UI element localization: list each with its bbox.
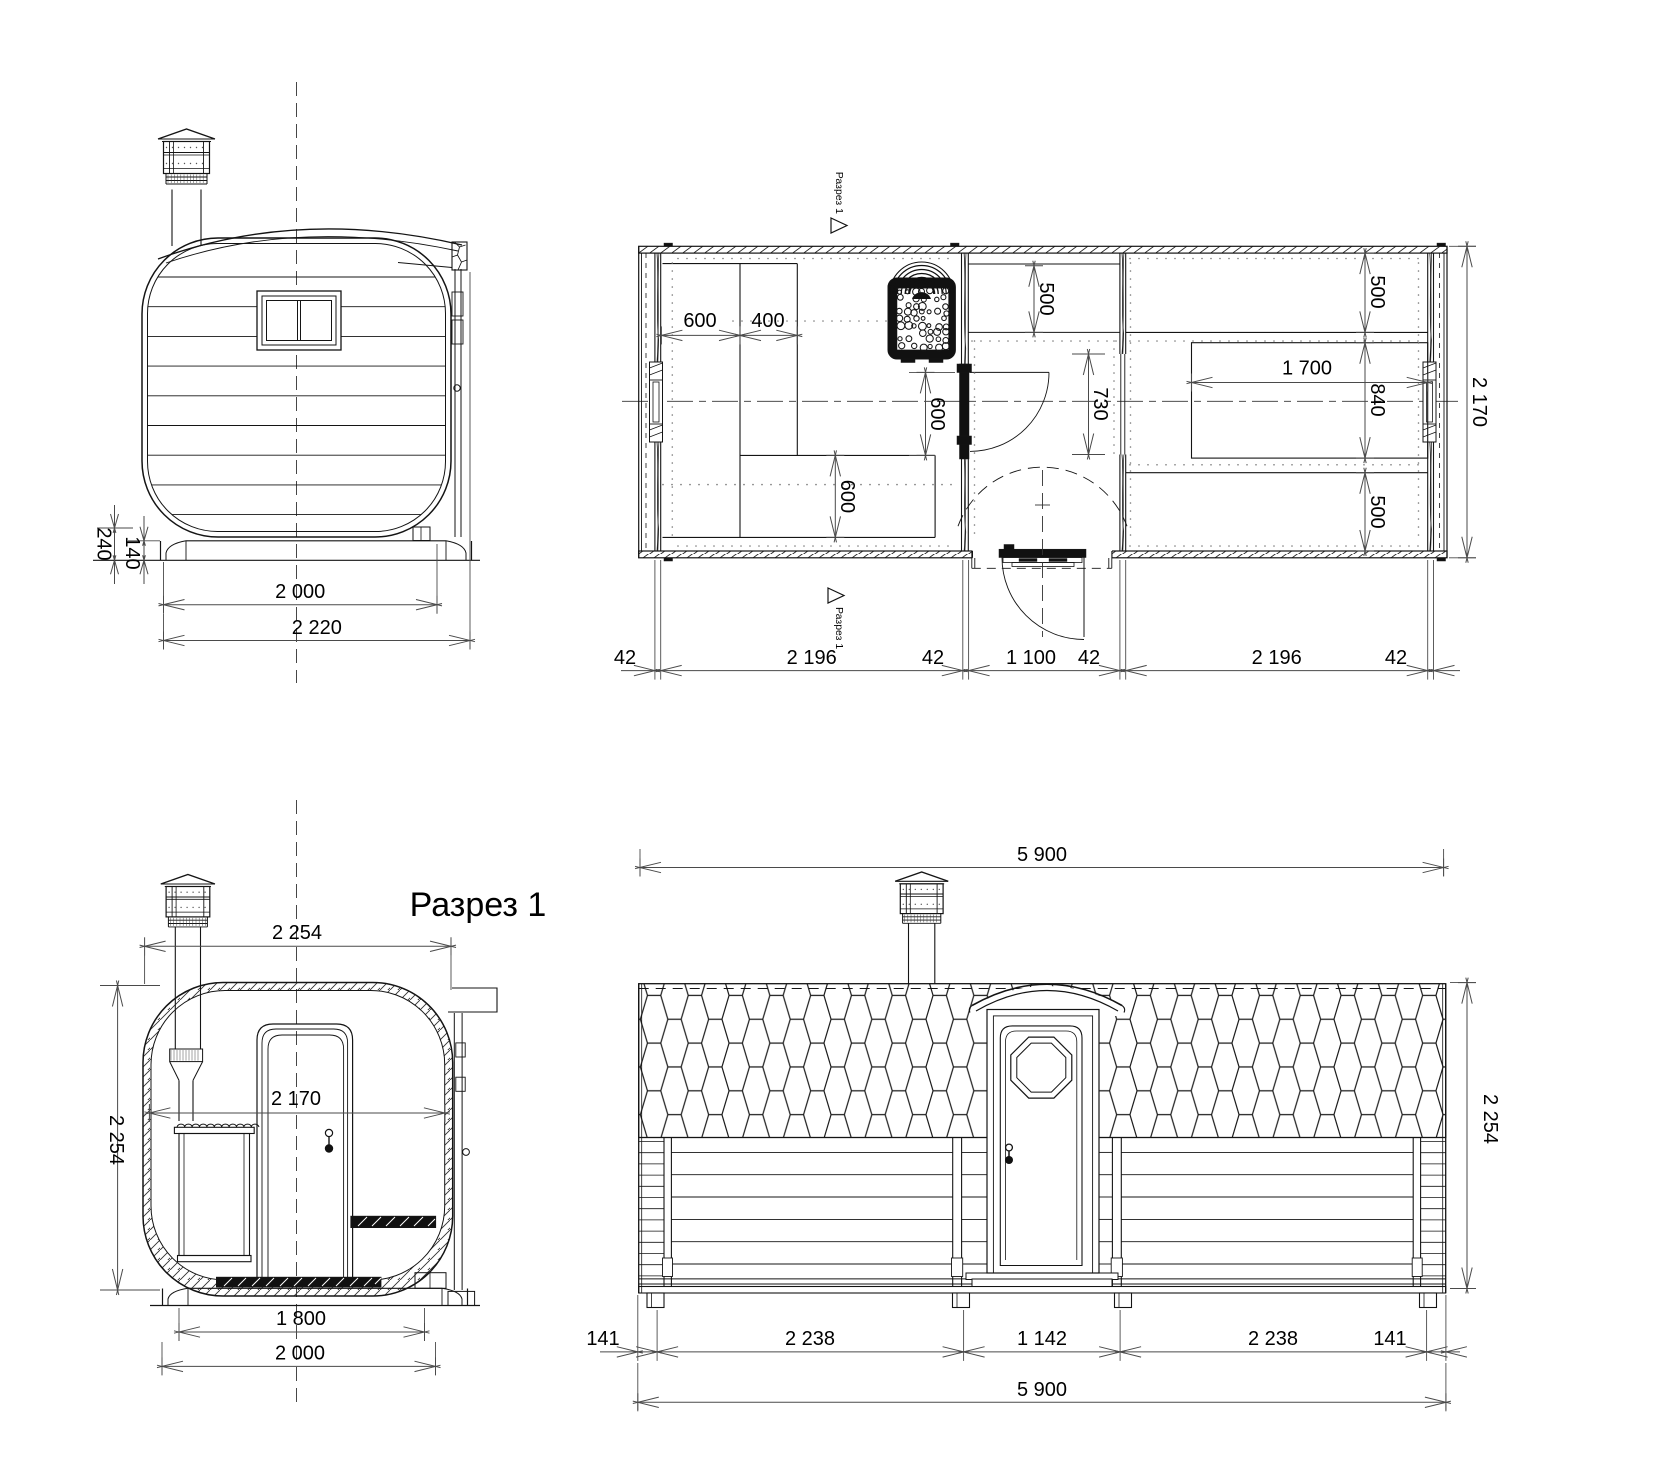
svg-text:2 170: 2 170 xyxy=(1468,377,1490,427)
svg-text:500: 500 xyxy=(1366,495,1388,528)
svg-text:140: 140 xyxy=(121,536,143,569)
svg-text:2 000: 2 000 xyxy=(275,581,325,603)
svg-text:1 700: 1 700 xyxy=(1282,358,1332,380)
svg-text:2 238: 2 238 xyxy=(785,1328,835,1350)
svg-text:Разрез 1: Разрез 1 xyxy=(833,172,845,214)
svg-text:2 196: 2 196 xyxy=(1252,647,1302,669)
svg-text:2 254: 2 254 xyxy=(105,1115,127,1165)
svg-text:500: 500 xyxy=(1035,282,1057,315)
svg-text:2 238: 2 238 xyxy=(1248,1328,1298,1350)
svg-text:600: 600 xyxy=(836,480,858,513)
svg-text:5 900: 5 900 xyxy=(1017,844,1067,866)
svg-text:Разрез 1: Разрез 1 xyxy=(833,607,845,649)
svg-text:141: 141 xyxy=(586,1328,619,1350)
svg-text:2 220: 2 220 xyxy=(292,617,342,639)
svg-text:Разрез 1: Разрез 1 xyxy=(410,886,547,924)
svg-text:1 800: 1 800 xyxy=(276,1308,326,1330)
svg-text:2 254: 2 254 xyxy=(272,922,322,944)
svg-text:2 254: 2 254 xyxy=(1479,1094,1501,1144)
svg-text:42: 42 xyxy=(614,647,636,669)
svg-text:600: 600 xyxy=(683,310,716,332)
svg-text:600: 600 xyxy=(926,397,948,430)
svg-text:840: 840 xyxy=(1366,383,1388,416)
svg-text:240: 240 xyxy=(93,527,115,560)
svg-text:2 170: 2 170 xyxy=(271,1088,321,1110)
svg-text:5 900: 5 900 xyxy=(1017,1379,1067,1401)
svg-text:2 196: 2 196 xyxy=(787,647,837,669)
svg-text:2 000: 2 000 xyxy=(275,1342,325,1364)
svg-text:1 100: 1 100 xyxy=(1006,647,1056,669)
svg-text:42: 42 xyxy=(922,647,944,669)
svg-text:400: 400 xyxy=(751,310,784,332)
svg-text:730: 730 xyxy=(1089,387,1111,420)
svg-text:141: 141 xyxy=(1373,1328,1406,1350)
svg-text:1 142: 1 142 xyxy=(1017,1328,1067,1350)
svg-text:42: 42 xyxy=(1078,647,1100,669)
svg-text:500: 500 xyxy=(1366,275,1388,308)
svg-text:42: 42 xyxy=(1385,647,1407,669)
